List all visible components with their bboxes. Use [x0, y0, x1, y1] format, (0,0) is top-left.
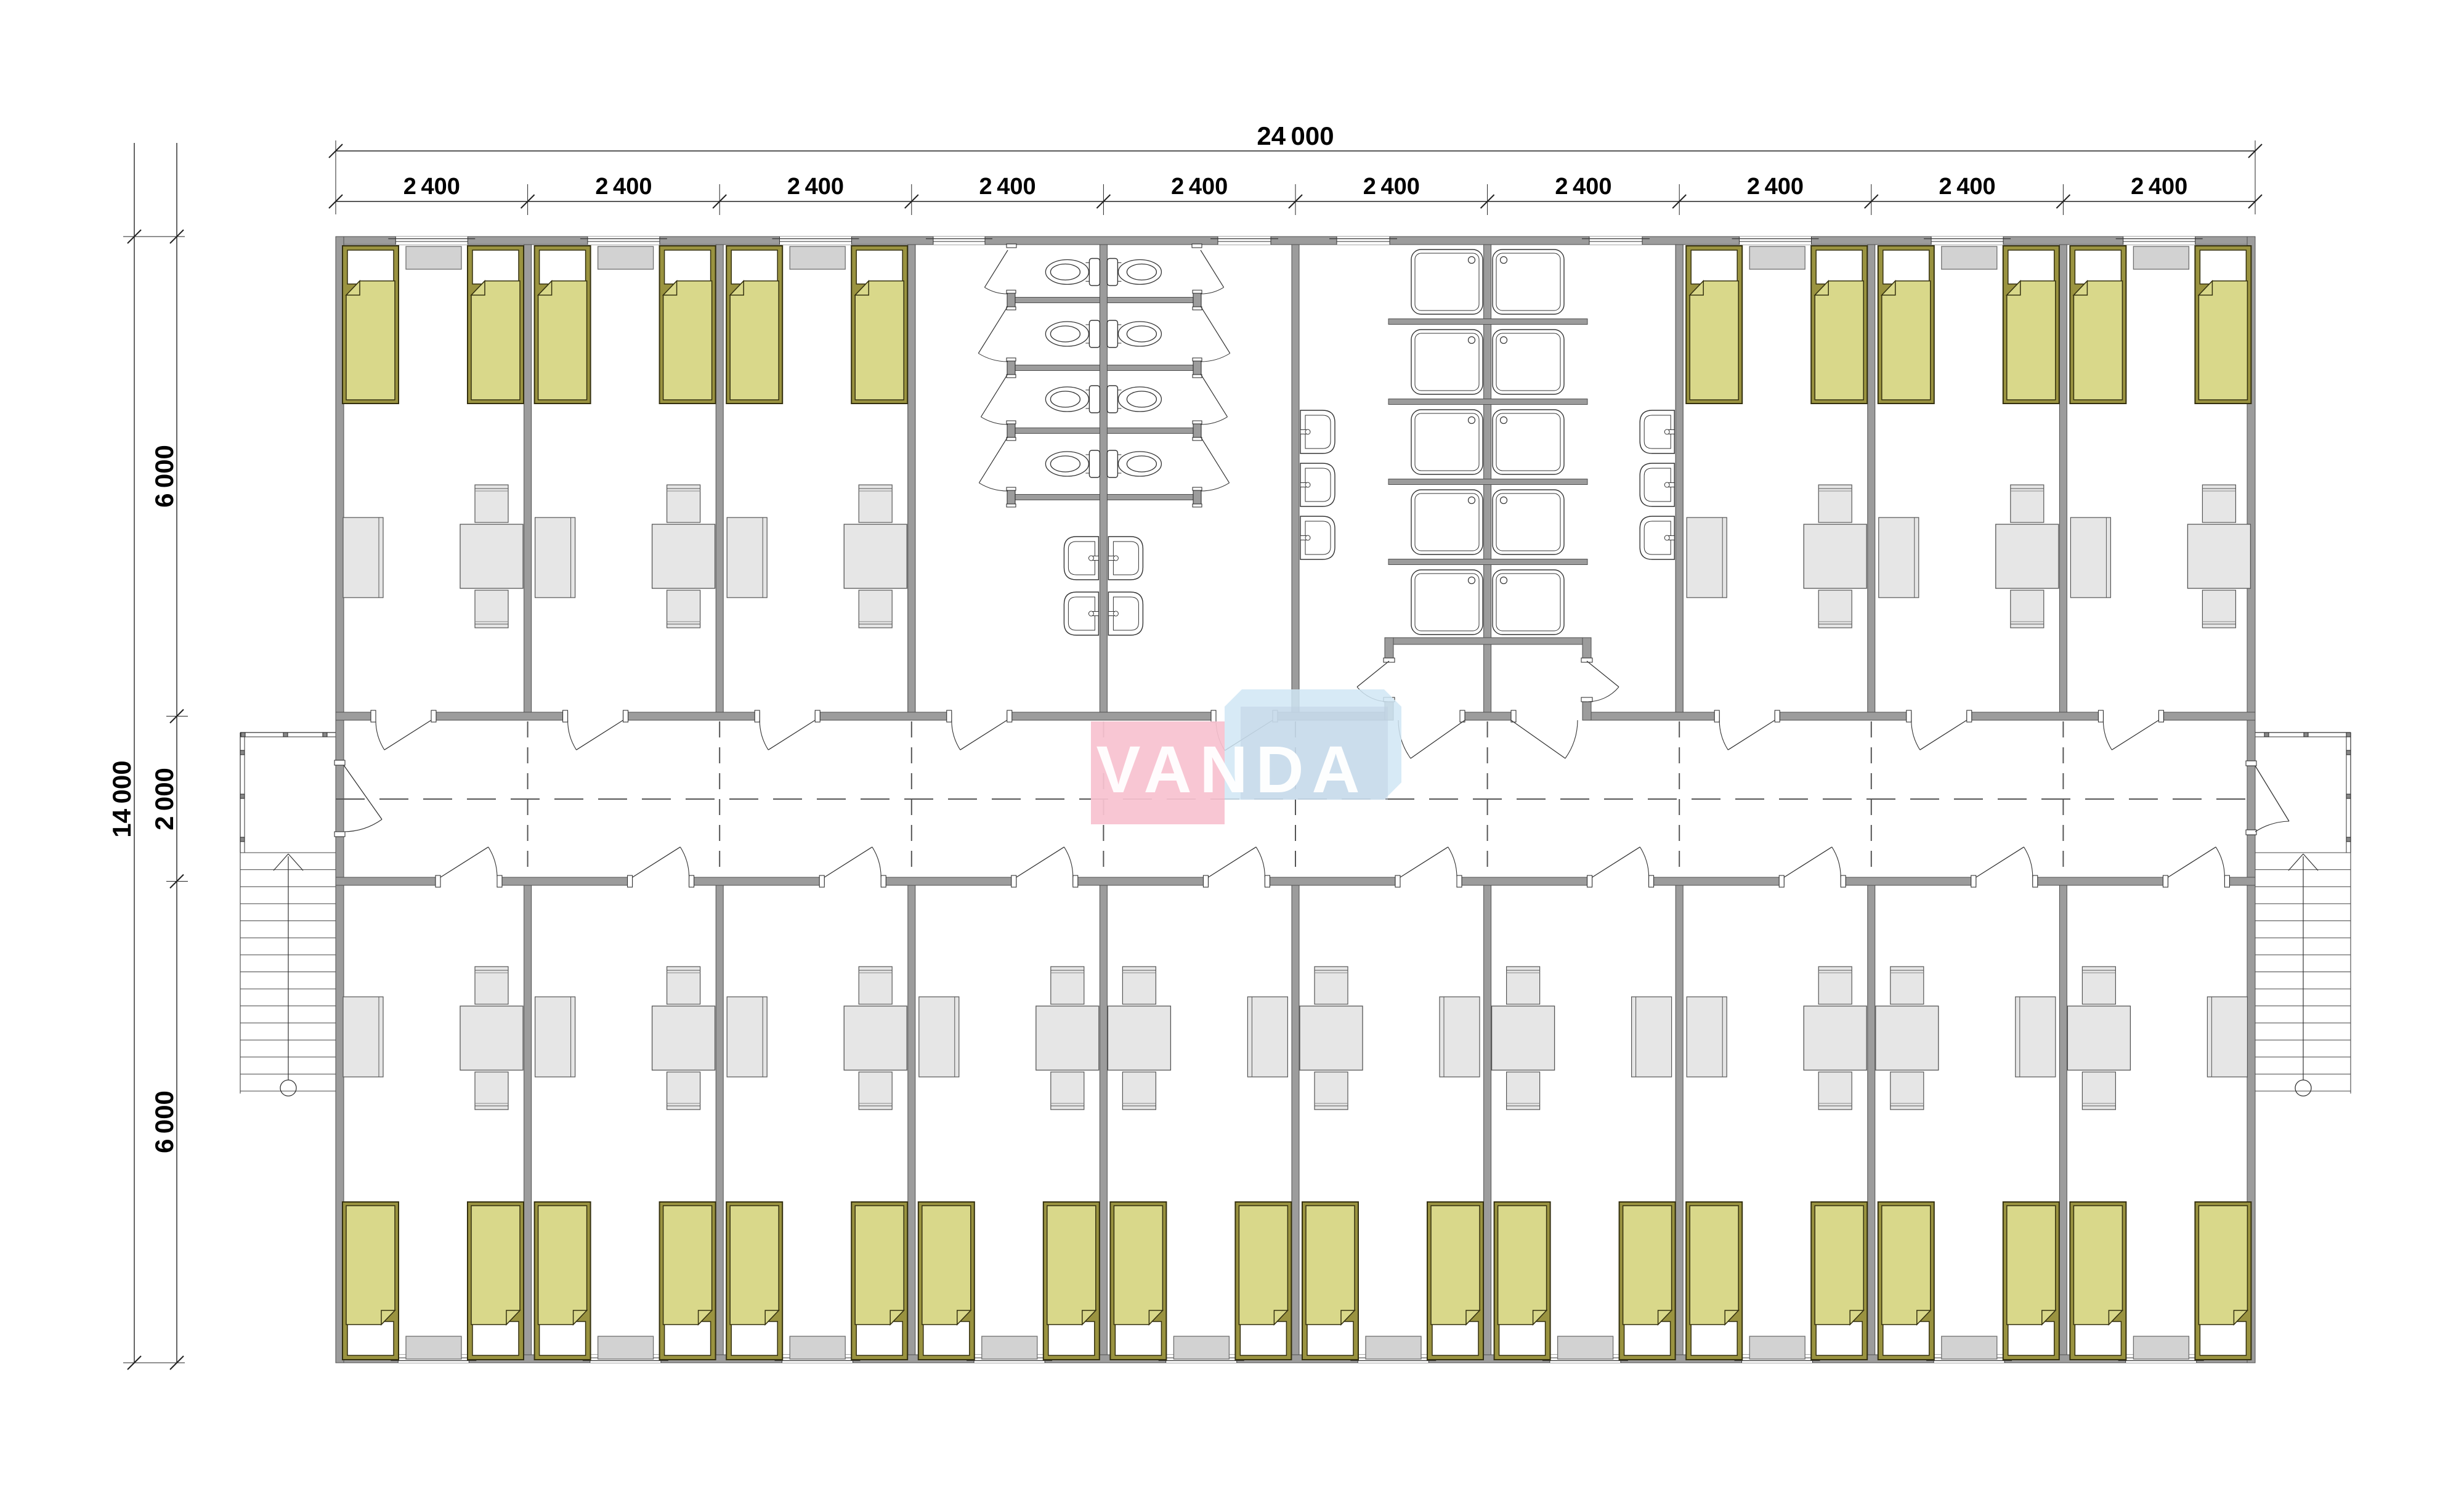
svg-text:2 400: 2 400: [595, 174, 652, 200]
svg-text:14 000: 14 000: [107, 760, 136, 837]
svg-text:2 400: 2 400: [403, 174, 460, 200]
svg-text:6 000: 6 000: [150, 1090, 179, 1153]
svg-text:24 000: 24 000: [1257, 121, 1334, 150]
svg-text:6 000: 6 000: [150, 445, 179, 508]
svg-text:2 400: 2 400: [1171, 174, 1228, 200]
svg-text:2 400: 2 400: [1363, 174, 1420, 200]
svg-text:2 400: 2 400: [2131, 174, 2187, 200]
svg-text:2 400: 2 400: [1747, 174, 1804, 200]
svg-text:2 000: 2 000: [150, 768, 179, 830]
svg-text:2 400: 2 400: [979, 174, 1036, 200]
svg-text:2 400: 2 400: [1939, 174, 1996, 200]
svg-text:VANDA: VANDA: [1096, 732, 1368, 806]
svg-text:2 400: 2 400: [1555, 174, 1611, 200]
svg-text:2 400: 2 400: [787, 174, 844, 200]
